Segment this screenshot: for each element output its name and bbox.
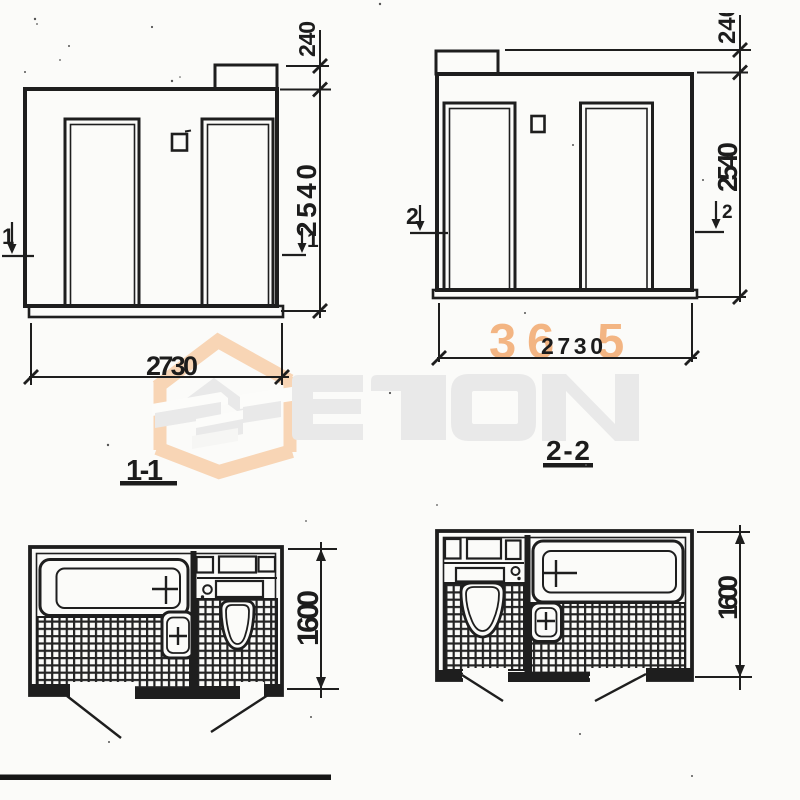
svg-text:2-2: 2-2 bbox=[546, 435, 590, 466]
svg-text:1: 1 bbox=[307, 229, 319, 252]
svg-text:2540: 2540 bbox=[712, 142, 743, 192]
svg-text:1: 1 bbox=[2, 224, 14, 249]
svg-text:240: 240 bbox=[294, 21, 320, 57]
svg-text:2: 2 bbox=[406, 203, 419, 229]
svg-text:1600: 1600 bbox=[292, 590, 325, 646]
svg-text:1600: 1600 bbox=[713, 575, 743, 620]
svg-text:3: 3 bbox=[489, 315, 516, 369]
svg-text:2: 2 bbox=[722, 202, 733, 223]
svg-text:2730: 2730 bbox=[146, 351, 198, 381]
